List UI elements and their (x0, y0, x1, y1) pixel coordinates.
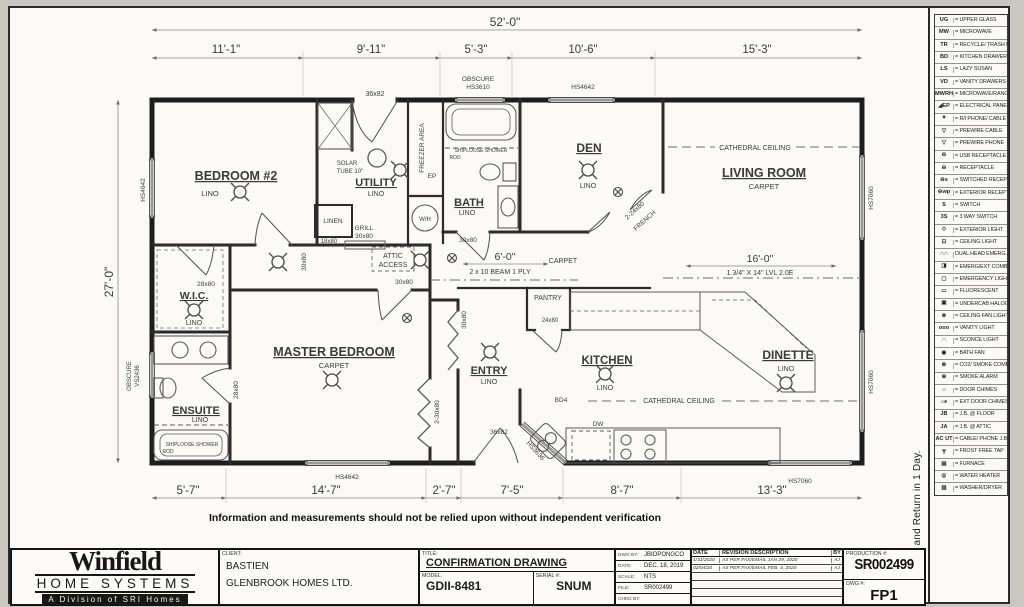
phone-cable-icon: ▼ (935, 116, 954, 122)
fixtures (154, 103, 815, 463)
legend-item: ⊗= CEILING FAN LIGHT COMBO. (935, 311, 1007, 323)
legend-item: ∩= SCONCE LIGHT (935, 336, 1007, 348)
note-shower-bath-line2: ROD (449, 155, 461, 161)
note-carpet-hall: CARPET (549, 258, 578, 265)
note-freezer-area: FREEZER AREA (419, 123, 426, 173)
note-solar-line1: SOLAR (337, 161, 358, 167)
client-cell: CLIENT: BASTIEN GLENBROOK HOMES LTD. (220, 550, 420, 604)
company-logo: Winfield HOME SYSTEMS A Division of SRI … (12, 550, 220, 604)
window-top-obscure-line1: OBSCURE (462, 76, 495, 83)
beam-lvl-spec: 1 3/4" X 14" LVL 2.0E (727, 270, 794, 277)
legend-item: MW= MICROWAVE (935, 27, 1007, 39)
window-right2: HS7060 (868, 370, 875, 394)
legend-item: VD= VANITY DRAWERS (935, 77, 1007, 89)
room-ensuite: ENSUITE (172, 405, 220, 417)
door-bedroom2: 30x80 (301, 253, 308, 271)
legend-item: TR= RECYCLE/ TRASH BIN (935, 40, 1007, 52)
revision-table: DATE REVISION DESCRIPTION BY 1/31/2020 A… (692, 550, 844, 604)
door-master-closet: 2-30x80 (434, 400, 441, 424)
legend-item: ▢= EMERGENCY LIGHT (935, 274, 1007, 286)
dim-top-0: 11'-1" (212, 44, 240, 56)
exterior-walls (152, 100, 862, 463)
dim-top-3: 10'-6" (568, 44, 597, 56)
revision-row: 02/04/20 AS PER FAX/EMAIL FEB. 4, 2020 A… (692, 565, 842, 573)
legend-item: ⊡= CEILING LIGHT (935, 237, 1007, 249)
dim-bottom-2: 2'-7" (433, 485, 456, 497)
note-attic-line1: ATTIC (383, 253, 403, 260)
window-left1: HS4642 (140, 178, 147, 202)
exterior-light-icon: ◇ (935, 227, 954, 233)
legend-item: ⊖wp= EXTERIOR RECEPT. (935, 188, 1007, 200)
legend-item: ◉= BATH FAN (935, 348, 1007, 360)
legend-symbol: UG (935, 18, 954, 24)
dwg-number-label: DWG #: (844, 580, 924, 587)
room-utility: UTILITY (355, 177, 397, 189)
beam-lvl-len: 16'-0" (747, 253, 774, 265)
window-top-obscure-line2: HS3610 (466, 84, 490, 91)
room-living-floor: CARPET (749, 182, 780, 191)
logo-tagline: A Division of SRI Homes (42, 594, 187, 605)
room-kitchen-floor: LINO (597, 385, 614, 392)
legend-item: ooo= VANITY LIGHT (935, 323, 1007, 335)
electrical-panel-icon: ◢EP (935, 104, 954, 110)
logo-subtitle: HOME SYSTEMS (35, 574, 196, 594)
ceiling-fan-icon: ⊗ (935, 314, 954, 320)
revision-header-desc: REVISION DESCRIPTION (720, 550, 832, 556)
note-attic-line2: ACCESS (379, 262, 408, 269)
room-wic: W.I.C. (180, 290, 209, 302)
door-pantry: 24x80 (542, 318, 559, 324)
water-heater-icon: ◎ (935, 474, 954, 480)
legend-item: MWRH= MICROWAVE/RANGEHOOD (935, 89, 1007, 101)
note-shower-ensuite-line2: ROD (162, 449, 174, 455)
title-label: TITLE: (420, 550, 614, 557)
cable-phone-jb-icon: AC UT (935, 437, 954, 443)
door-top-utility: 36x82 (365, 91, 384, 98)
model-cell: MODEL: GDII-8481 (420, 572, 534, 604)
receptacle-icon: ⊖ (935, 166, 954, 172)
furnace-icon: ▤ (935, 462, 954, 468)
legend-item: 3S= 3 WAY SWITCH (935, 212, 1007, 224)
beam-hall-spec: 2 x 10 BEAM 1 PLY (469, 269, 531, 276)
legend-item: ▽= PREWIRE PHONE (935, 138, 1007, 150)
legend-item: LS= LAZY SUSAN (935, 64, 1007, 76)
note-bd4: BD4 (555, 397, 568, 404)
door-master: 30x80 (395, 279, 413, 286)
legend-item: ▣= UNDERCAB HALOGEN (935, 299, 1007, 311)
ext-door-chimes-icon: ⌂e (935, 400, 954, 406)
title-block: Winfield HOME SYSTEMS A Division of SRI … (10, 548, 926, 606)
window-left2-id: VS2436 (135, 365, 141, 387)
legend-item: JA= J.B. @ ATTIC (935, 422, 1007, 434)
note-ep: EP (428, 173, 437, 180)
door-entry-closet: 30x80 (461, 311, 468, 329)
legend-item: ⊛= CO2/ SMOKE COMBO (935, 360, 1007, 372)
dim-bottom-4: 8'-7" (611, 485, 634, 497)
undercab-halogen-icon: ▣ (935, 301, 954, 307)
room-living: LIVING ROOM (722, 166, 806, 180)
model-number: GDII-8481 (420, 579, 533, 593)
scale-value: NTS (644, 574, 656, 580)
room-den-floor: LINO (580, 183, 597, 190)
jb-attic-icon: JA (935, 425, 954, 431)
revision-row: 1/31/2020 AS PER FAX/EMAIL JAN 29, 2020 … (692, 557, 842, 565)
legend-item: ∩∩DUAL HEAD EMERG. (935, 249, 1007, 261)
dwg-number: FP1 (844, 587, 924, 604)
room-entry-floor: LINO (481, 379, 498, 386)
door-wic: 28x80 (197, 281, 215, 288)
chkdby-label: CHKD BY: (616, 597, 644, 602)
prewire-phone-icon: ▽ (935, 141, 954, 147)
revision-row-empty (692, 589, 842, 597)
room-pantry: PANTRY (534, 295, 562, 302)
dim-top-4: 15'-3" (742, 44, 771, 56)
room-ensuite-floor: LINO (192, 417, 209, 424)
legend-item: ┳= FROST FREE TAP (935, 446, 1007, 458)
legend-item: ▭= FLUORESCENT (935, 286, 1007, 298)
door-ensuite: 28x80 (233, 381, 240, 399)
vanity-light-icon: ooo (935, 326, 954, 332)
closet-linen-label: LINEN (323, 218, 342, 225)
legend-item: UG= UPPER GLASS (935, 15, 1007, 27)
revision-row-empty (692, 573, 842, 581)
dim-overall: 52'-0" (490, 15, 521, 29)
prewire-cable-icon: ▽ (935, 129, 954, 135)
serial-cell: SERIAL #: SNUM (534, 572, 614, 604)
room-master: MASTER BEDROOM (273, 345, 395, 359)
dim-top-2: 5'-3" (465, 44, 488, 56)
serial-number: SNUM (534, 579, 614, 593)
legend-item: ◎= WATER HEATER (935, 471, 1007, 483)
legend-symbol: TR (935, 43, 954, 49)
disclaimer-text: Information and measurements should not … (90, 512, 780, 524)
usb-receptacle-icon: ⊖ (935, 153, 954, 159)
note-wh: W/H (419, 217, 431, 223)
bath-fan-icon: ◉ (935, 351, 954, 357)
room-wic-floor: LINO (186, 320, 203, 327)
revision-header-date: DATE (692, 550, 720, 556)
legend-item: BD= KITCHEN DRAWERS (935, 52, 1007, 64)
window-bottom1: HS4642 (335, 474, 359, 481)
window-bottom2: HS7060 (788, 478, 812, 485)
production-cell: PRODUCTION #: SR002499 DWG #: FP1 (844, 550, 924, 604)
room-master-floor: CARPET (319, 361, 350, 370)
sconce-light-icon: ∩ (935, 338, 954, 344)
ceiling-light-icon: ⊡ (935, 240, 954, 246)
room-utility-floor: LINO (368, 191, 385, 198)
dim-bottom-5: 13'-3" (757, 485, 786, 497)
door-chimes-icon: ⌂ (935, 388, 954, 394)
door-entry: 36x82 (490, 429, 508, 436)
legend-item: ⌂= DOOR CHIMES (935, 385, 1007, 397)
drawing-title: CONFIRMATION DRAWING (420, 557, 614, 571)
note-cathedral-living: CATHEDRAL CEILING (719, 145, 791, 152)
frost-free-tap-icon: ┳ (935, 449, 954, 455)
legend-item: ⊖= USB RECEPTACLE (935, 151, 1007, 163)
file-value: SR002499 (644, 585, 672, 591)
switched-receptacle-icon: ⊖s (935, 178, 954, 184)
door-linen: 18x80 (321, 239, 338, 245)
window-right1: HS7060 (868, 186, 875, 210)
legend-symbol: LS (935, 67, 954, 73)
legend-item: ⊖= RECEPTACLE (935, 163, 1007, 175)
legend-symbol: MWRH (935, 92, 954, 98)
date-value: DEC. 18, 2019 (644, 563, 683, 569)
plan-labels: 52'-0" 11'-1" 9'-11" 5'-3" 10'-6" 15'-3"… (102, 15, 875, 497)
legend-item: ⊖s= SWITCHED RECEPT. (935, 175, 1007, 187)
room-bath: BATH (454, 197, 484, 209)
legend-symbol: BD (935, 55, 954, 61)
legend-item: ▽= PREWIRE CABLE (935, 126, 1007, 138)
production-number: SR002499 (847, 557, 921, 573)
room-dinette: DINETTE (762, 348, 813, 362)
client-label: CLIENT: (220, 550, 418, 557)
room-bedroom2-floor: LINO (201, 189, 219, 198)
legend-panel: UG= UPPER GLASS MW= MICROWAVE TR= RECYCL… (934, 14, 1008, 496)
dim-left: 27'-0" (102, 267, 116, 298)
scale-label: SCALE: (616, 575, 644, 580)
legend-item: AC UT= CABLE/ PHONE J.B (935, 434, 1007, 446)
client-name: BASTIEN (220, 557, 418, 574)
emergency-light-icon: ▢ (935, 277, 954, 283)
floor-plan-drawing: 52'-0" 11'-1" 9'-11" 5'-3" 10'-6" 15'-3"… (0, 0, 930, 547)
smoke-alarm-icon: ⊕ (935, 375, 954, 381)
note-dw: DW (593, 421, 605, 428)
file-label: FILE: (616, 586, 644, 591)
legend-item: ◨= EMERG/EXT COMBO (935, 262, 1007, 274)
note-solar-line2: TUBE 10" (337, 169, 363, 175)
legend-symbol: MW (935, 30, 954, 36)
co2-smoke-combo-icon: ⊛ (935, 363, 954, 369)
legend-item: S= SWITCH (935, 200, 1007, 212)
dim-bottom-1: 14'-7" (311, 485, 340, 497)
windows (152, 100, 862, 463)
drawing-info-cell: DWG BY:JBIOPONGCO DATE:DEC. 18, 2019 SCA… (616, 550, 692, 604)
washer-dryer-icon: ▥ (935, 486, 954, 492)
dim-bottom-0: 5'-7" (177, 485, 200, 497)
exterior-receptacle-icon: ⊖wp (935, 190, 954, 196)
legend-item: JB= J.B. @ FLOOR (935, 410, 1007, 422)
drawing-title-cell: TITLE: CONFIRMATION DRAWING MODEL: GDII-… (420, 550, 616, 604)
grill-label: GRILL (355, 225, 374, 232)
legend-item: ◇= EXTERIOR LIGHT (935, 225, 1007, 237)
dual-head-emergency-icon: ∩∩ (935, 252, 954, 258)
revision-row-empty (692, 581, 842, 589)
door-bath: 30x80 (459, 237, 477, 244)
dwgby-label: DWG BY: (616, 553, 644, 558)
note-cathedral-kitchen: CATHEDRAL CEILING (643, 398, 715, 405)
fluorescent-icon: ▭ (935, 289, 954, 295)
room-kitchen: KITCHEN (581, 355, 632, 367)
dim-bottom-3: 7'-5" (501, 485, 524, 497)
client-company: GLENBROOK HOMES LTD. (220, 574, 418, 591)
room-den: DEN (576, 141, 601, 155)
dim-top-1: 9'-11" (357, 44, 385, 56)
window-left2-obscure: OBSCURE (127, 361, 133, 391)
production-label: PRODUCTION #: (844, 550, 924, 557)
emergency-exterior-combo-icon: ◨ (935, 264, 954, 270)
three-way-switch-icon: 3S (935, 215, 954, 221)
legend-item: ◢EP= ELECTRICAL PANEL (935, 101, 1007, 113)
grill-size: 30x80 (355, 233, 373, 240)
legend-item: ⊕= SMOKE ALARM (935, 373, 1007, 385)
switch-icon: S (935, 203, 954, 209)
jb-floor-icon: JB (935, 412, 954, 418)
revision-header-by: BY (832, 550, 842, 556)
window-top2: HS4642 (571, 84, 595, 91)
legend-item: ▥= WASHER/DRYER (935, 483, 1007, 494)
model-label: MODEL: (420, 572, 533, 579)
room-entry: ENTRY (471, 365, 509, 377)
note-shower-bath-line1: SHIPLOOSE SHOWER (455, 148, 508, 154)
room-bath-floor: LINO (459, 210, 476, 217)
room-dinette-floor: LINO (778, 366, 795, 373)
dwgby-value: JBIOPONGCO (644, 552, 684, 558)
legend-item: ▤= FURNACE (935, 459, 1007, 471)
logo-wordmark: Winfield (69, 549, 161, 574)
beam-hall-len: 6'-0" (495, 251, 516, 263)
legend-item: ▼= R/I PHONE/ CABLE (935, 114, 1007, 126)
revision-row-empty (692, 597, 842, 604)
legend-item: ⌂e= EXT DOOR CHIMES (935, 397, 1007, 409)
note-shower-ensuite-line1: SHIPLOOSE SHOWER (166, 442, 219, 448)
room-bedroom2: BEDROOM #2 (195, 169, 278, 183)
serial-label: SERIAL #: (534, 572, 614, 579)
date-label: DATE: (616, 564, 644, 569)
legend-symbol: VD (935, 80, 954, 86)
